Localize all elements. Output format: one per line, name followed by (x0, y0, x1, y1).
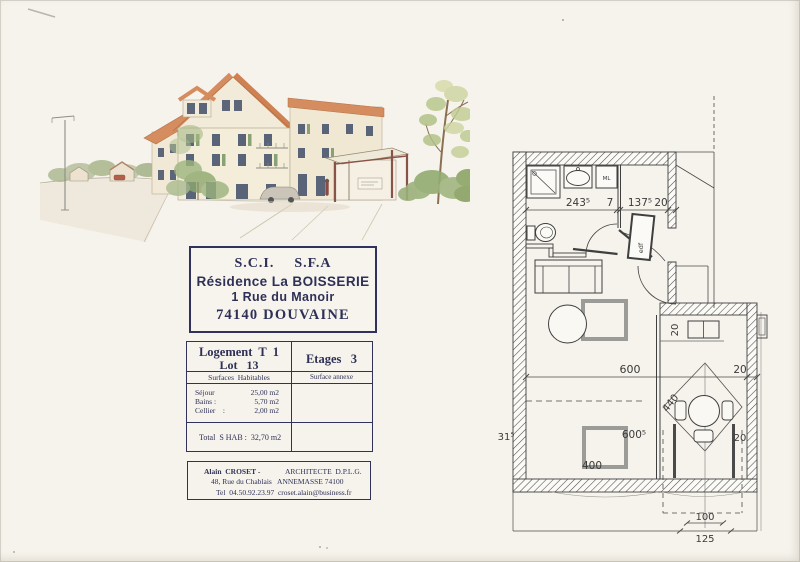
room-label: Séjour (195, 388, 215, 397)
edf-label: edf (637, 242, 645, 253)
unit-summary-block: Logement T 1 Lot 13 Etages 3 Surfaces Ha… (186, 341, 373, 452)
dim-balcony-wall-right: 20 (734, 433, 747, 444)
architect-contact: Tel 04.50.92.23.97 croset.alain@business… (216, 488, 352, 497)
dining-table (549, 305, 587, 343)
dim-125: 125 (695, 534, 714, 545)
floor-plan: edf ML (0, 0, 800, 562)
room-area: 25,00 m2 (251, 388, 279, 397)
residence-name: Résidence La BOISSERIE (191, 274, 375, 289)
ml-label: ML (603, 176, 612, 182)
title-block: S.C.I. S.F.A Résidence La BOISSERIE 1 Ru… (189, 246, 377, 333)
wall-top (513, 152, 676, 165)
dim-room-wall: 20 (733, 364, 746, 376)
wall-bottom (513, 479, 757, 492)
sfa-label: S.F.A (294, 256, 331, 272)
sci-label: S.C.I. (234, 256, 274, 272)
architect-title: ARCHITECTE D.P.L.G. (285, 467, 362, 476)
dim-left: 31⁵ (498, 432, 515, 443)
sink (564, 166, 592, 188)
dim-partition: 7 (607, 197, 614, 209)
balcony-bench (688, 321, 719, 338)
dim-100: 100 (695, 512, 714, 523)
entrance: edf (619, 214, 676, 262)
room-label: Cellier : (195, 406, 225, 415)
annexe-header: Surface annexe (291, 373, 372, 381)
dim-room-width: 600 (620, 363, 641, 376)
dim-bed: 600⁵ (622, 429, 646, 441)
shower (527, 166, 560, 198)
wall-balcony-top (660, 303, 747, 315)
balcony-chair-bottom (694, 430, 713, 442)
balcony-chair-right (722, 401, 733, 420)
balcony-table (689, 396, 720, 427)
scanned-architect-sheet: edf ML (0, 0, 800, 562)
city-address: 74140 DOUVAINE (191, 307, 375, 324)
subheader-rule (187, 383, 372, 384)
architect-block: Alain CROSET - ARCHITECTE D.P.L.G. 48, R… (187, 461, 371, 500)
wall-left (513, 152, 526, 492)
rug (583, 301, 626, 339)
surfaces-header: Surfaces Habitables (187, 373, 291, 382)
room-area: 2,00 m2 (254, 406, 279, 415)
room-area: 5,70 m2 (254, 397, 279, 406)
lot-label: Lot 13 (187, 358, 291, 373)
surface-row: Bains : 5,70 m2 (195, 397, 279, 406)
dim-wall: 20 (654, 197, 667, 209)
surface-row: Séjour 25,00 m2 (195, 388, 279, 397)
dim-room (523, 374, 760, 401)
etages-label: Etages 3 (291, 352, 372, 367)
dim-balcony-wall-top: 20 (670, 324, 681, 337)
wall-right-stub (668, 262, 676, 305)
total-surface: Total S HAB : 32,70 m2 (199, 433, 281, 442)
sofa (535, 260, 602, 293)
dim-bed-width: 400 (582, 460, 602, 472)
exterior-box (757, 315, 767, 338)
dim-bath-width: 243⁵ (566, 197, 590, 209)
window-wall (657, 315, 661, 479)
architect-name: Alain CROSET - (204, 467, 260, 476)
total-rule (187, 422, 372, 423)
dim-hall-width: 137⁵ (628, 197, 652, 209)
title-line-1: S.C.I. S.F.A (191, 256, 375, 272)
surface-row: Cellier : 2,00 m2 (195, 406, 279, 415)
toilet (527, 224, 556, 242)
wall-right-upper (668, 152, 676, 228)
architect-address: 48, Rue du Chablais ANNEMASSE 74100 (211, 477, 344, 486)
room-label: Bains : (195, 397, 216, 406)
furniture (535, 260, 626, 467)
wall-balcony-right (747, 303, 757, 479)
street-address: 1 Rue du Manoir (191, 290, 375, 304)
